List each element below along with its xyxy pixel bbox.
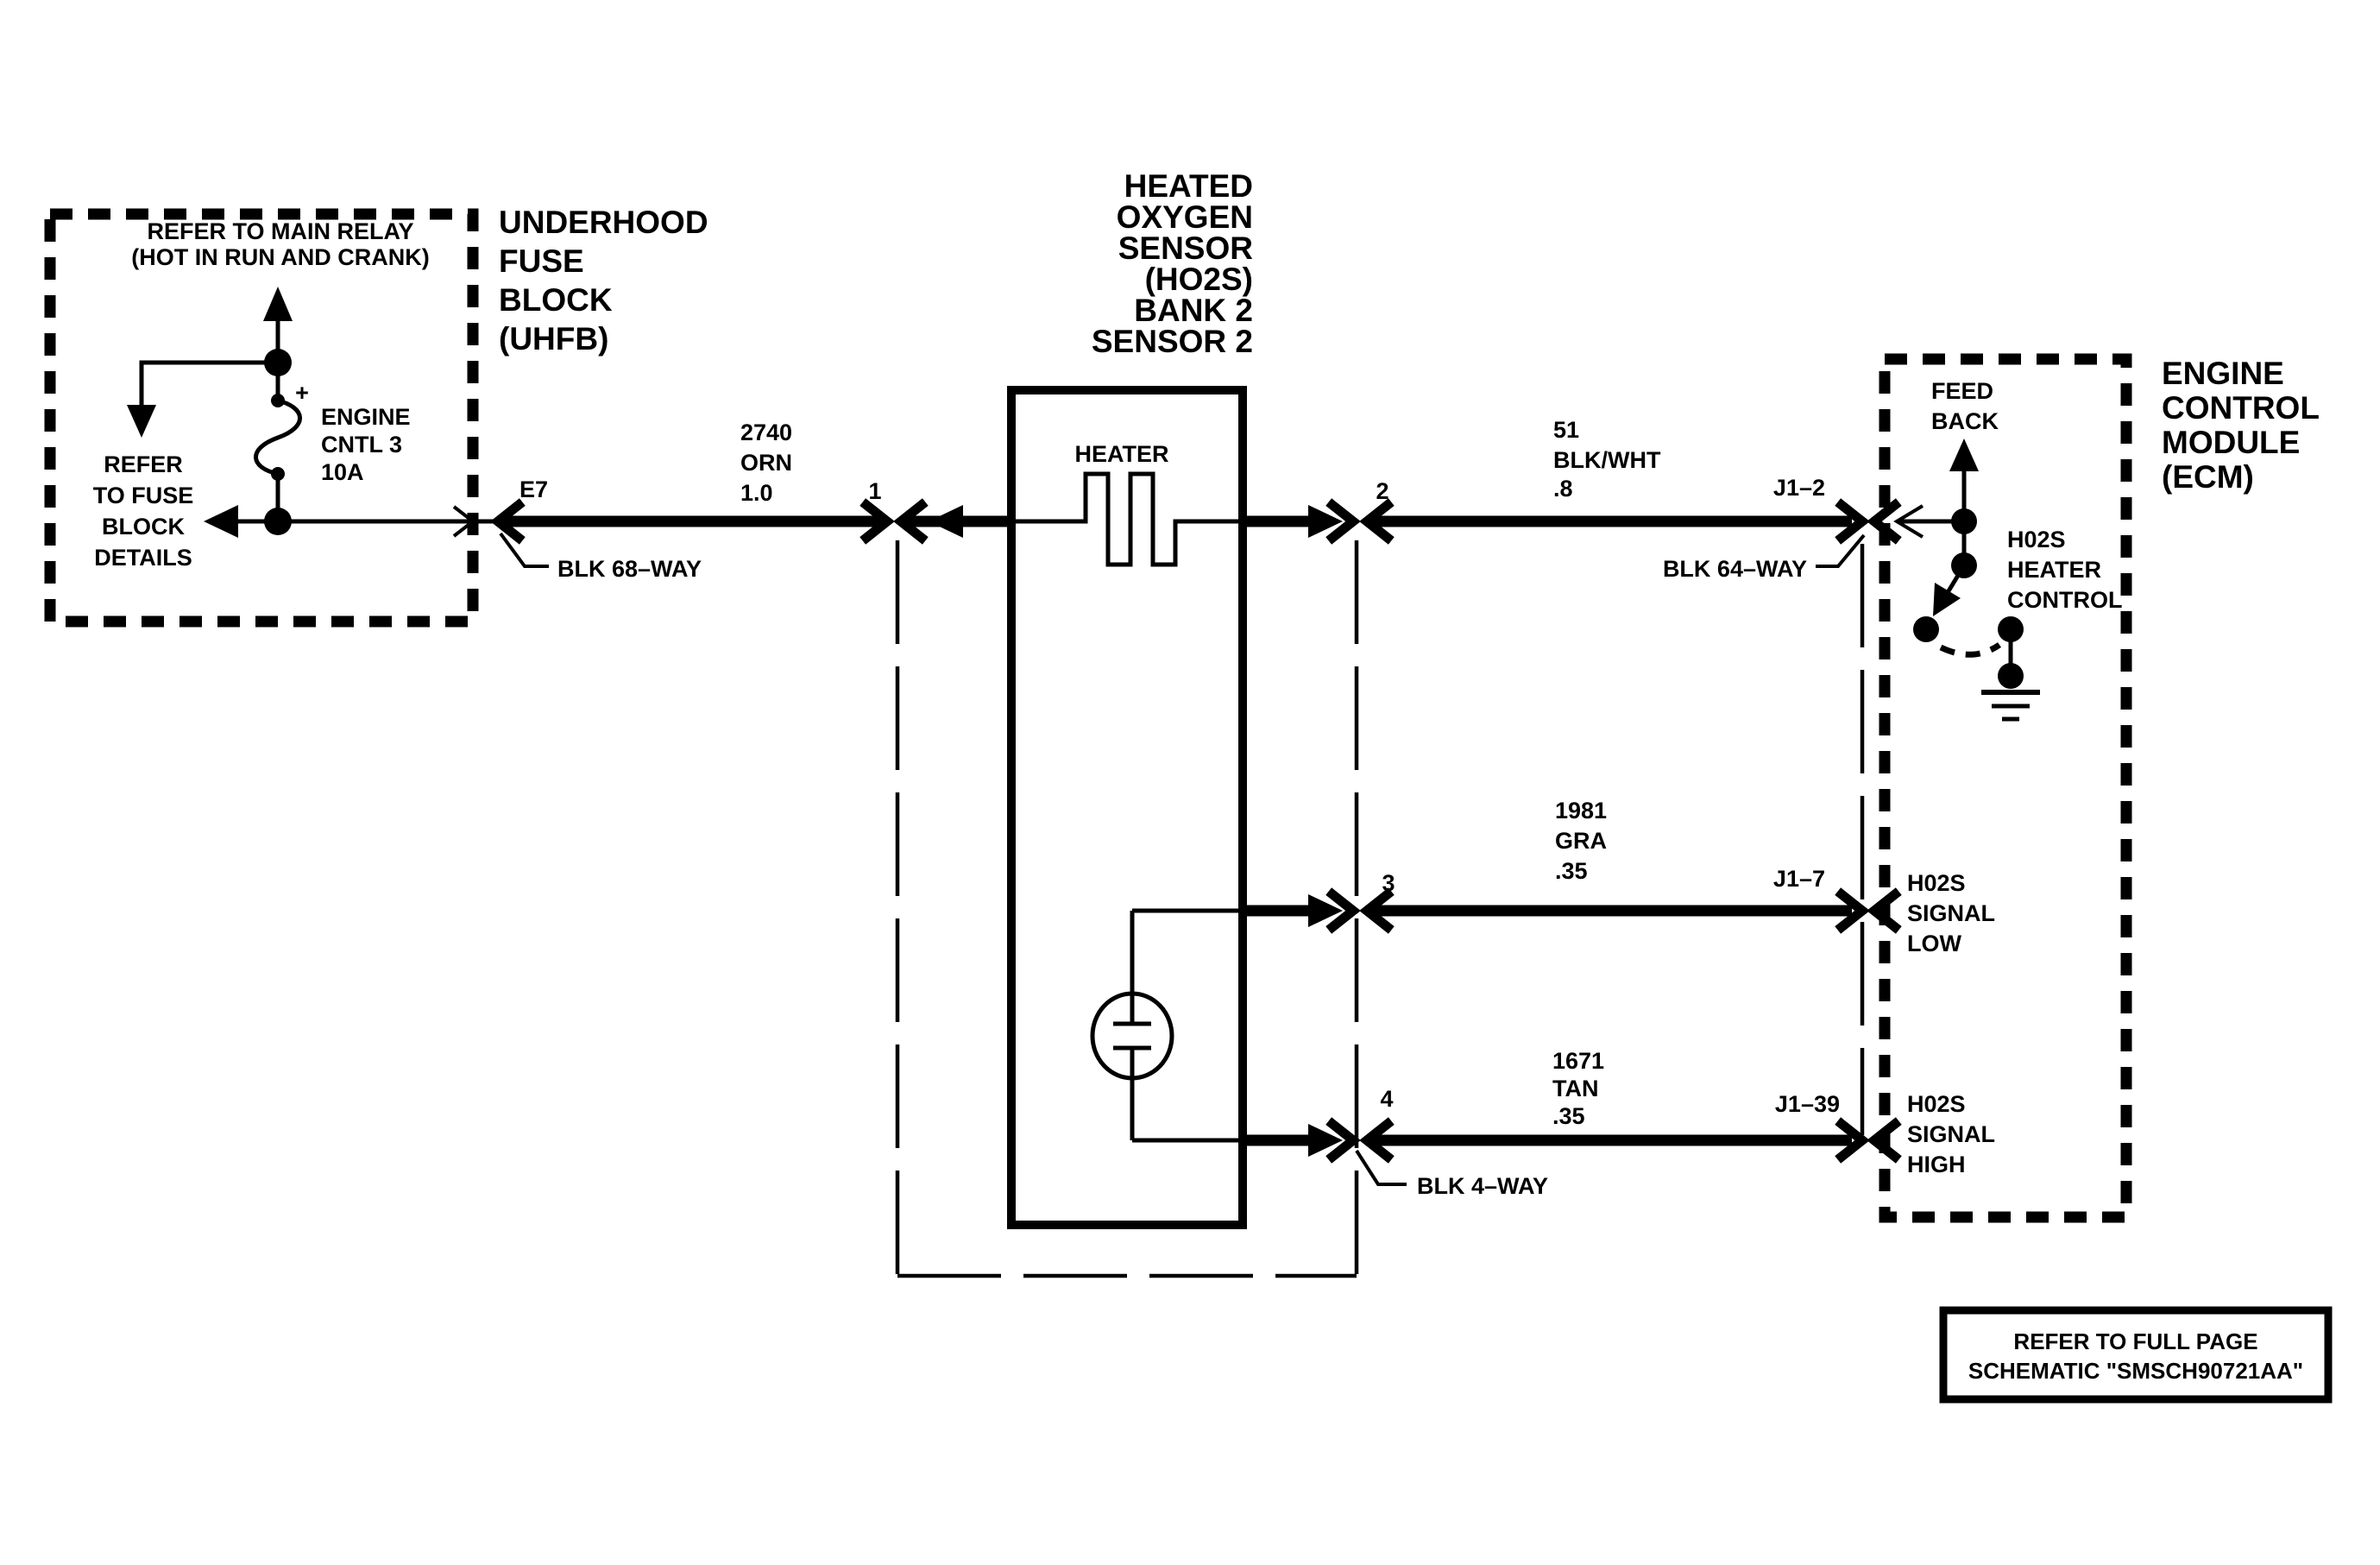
feedback-up-arrow-icon bbox=[1949, 439, 1979, 471]
wire3-color: GRA bbox=[1555, 828, 1607, 854]
wire2-gauge: .8 bbox=[1553, 476, 1573, 502]
fuse-note-line4: DETAILS bbox=[94, 545, 192, 571]
wire3-gauge: .35 bbox=[1555, 858, 1588, 884]
wire-heater-feed: E7 1 2740 ORN 1.0 BLK 68–WAY bbox=[498, 420, 1011, 582]
reference-line2: SCHEMATIC "SMSCH90721AA" bbox=[1968, 1358, 2303, 1384]
switch-travel-arc bbox=[1941, 645, 1999, 654]
down-arrow-icon bbox=[127, 405, 156, 438]
sensor-title-line1: HEATED bbox=[1124, 168, 1253, 204]
wire1-color: ORN bbox=[740, 450, 792, 476]
schematic-reference: REFER TO FULL PAGE SCHEMATIC "SMSCH90721… bbox=[1943, 1310, 2328, 1399]
pin-j1-39: J1–39 bbox=[1775, 1091, 1840, 1117]
fuse-terminal-bottom bbox=[271, 467, 285, 481]
ho2s-wiring-diagram: REFER TO MAIN RELAY (HOT IN RUN AND CRAN… bbox=[0, 0, 2380, 1565]
sensor-title-line5: BANK 2 bbox=[1134, 293, 1253, 328]
signal-low-label-line2: SIGNAL bbox=[1907, 900, 1995, 926]
ecm-title-line4: (ECM) bbox=[2162, 459, 2254, 495]
up-arrow-icon bbox=[263, 287, 293, 321]
uhfb-title-line2: FUSE bbox=[499, 243, 584, 279]
sensor-title-line4: (HO2S) bbox=[1145, 262, 1253, 297]
heater-control-label-line1: H02S bbox=[2007, 527, 2066, 552]
wire-signal-low: 3 J1–7 1981 GRA .35 bbox=[1243, 798, 1895, 927]
reference-line1: REFER TO FULL PAGE bbox=[2013, 1328, 2257, 1354]
signal-low-label-line1: H02S bbox=[1907, 870, 1966, 896]
wire-signal-high: 4 J1–39 1671 TAN .35 BLK 4–WAY bbox=[1243, 1048, 1895, 1199]
junction-dot-bottom bbox=[264, 508, 292, 535]
switch-arrow-icon bbox=[1933, 583, 1961, 616]
feedback-label-line1: FEED bbox=[1931, 378, 1993, 404]
wire4-circuit: 1671 bbox=[1552, 1048, 1604, 1074]
blk-4-way-label: BLK 4–WAY bbox=[1417, 1173, 1548, 1199]
heater-element-icon bbox=[1016, 474, 1238, 565]
wiring-diagram-page: REFER TO MAIN RELAY (HOT IN RUN AND CRAN… bbox=[0, 0, 2380, 1565]
fuse-name-line2: CNTL 3 bbox=[321, 432, 402, 458]
ecm-dashed-box bbox=[1885, 359, 2126, 1217]
ecm-title-line3: MODULE bbox=[2162, 425, 2300, 460]
main-relay-note-line1: REFER TO MAIN RELAY bbox=[147, 218, 413, 244]
switch-contact-left-dot bbox=[1913, 616, 1939, 642]
pin-j1-2: J1–2 bbox=[1773, 475, 1825, 501]
wire1-circuit: 2740 bbox=[740, 420, 792, 445]
blk-64-way-label: BLK 64–WAY bbox=[1663, 556, 1807, 582]
sensor-title-line3: SENSOR bbox=[1118, 230, 1253, 266]
ecm-title-line2: CONTROL bbox=[2162, 390, 2320, 426]
fuse-note-line3: BLOCK bbox=[102, 514, 185, 540]
sensor-title: HEATED OXYGEN SENSOR (HO2S) BANK 2 SENSO… bbox=[1092, 168, 1253, 359]
wire2-color: BLK/WHT bbox=[1553, 447, 1661, 473]
pin-j1-7: J1–7 bbox=[1773, 866, 1825, 892]
blk68-leader bbox=[501, 533, 549, 566]
signal-high-label-line2: SIGNAL bbox=[1907, 1121, 1995, 1147]
wire4-color: TAN bbox=[1552, 1076, 1599, 1101]
uhfb-title: UNDERHOOD FUSE BLOCK (UHFB) bbox=[499, 205, 708, 357]
wire4-gauge: .35 bbox=[1552, 1103, 1585, 1129]
heater-control-label-line2: HEATER bbox=[2007, 557, 2101, 583]
sensor-title-line2: OXYGEN bbox=[1117, 199, 1253, 235]
fuse-note-line2: TO FUSE bbox=[93, 483, 194, 508]
flow-arrow-left-icon bbox=[929, 505, 963, 538]
reference-box bbox=[1943, 1310, 2328, 1399]
pin-3: 3 bbox=[1382, 870, 1395, 896]
wire-heater-control: 2 J1–2 51 BLK/WHT .8 BLK 64–WAY bbox=[1243, 417, 1895, 1135]
pin-4: 4 bbox=[1380, 1086, 1393, 1112]
fuse-plus-sign: + bbox=[295, 380, 309, 406]
fuse-block-detail: REFER TO MAIN RELAY (HOT IN RUN AND CRAN… bbox=[50, 214, 499, 622]
fuse-element-icon bbox=[255, 401, 299, 474]
ecm-title-line1: ENGINE bbox=[2162, 356, 2284, 391]
pin-1: 1 bbox=[868, 478, 881, 504]
signal-high-label-line3: HIGH bbox=[1907, 1152, 1966, 1177]
signal-high-label-line1: H02S bbox=[1907, 1091, 1966, 1117]
ground-dot bbox=[1998, 663, 2024, 689]
pin-2: 2 bbox=[1376, 478, 1388, 504]
signal-low-label-line3: LOW bbox=[1907, 931, 1961, 956]
heater-label: HEATER bbox=[1074, 441, 1168, 467]
fuse-note-line1: REFER bbox=[104, 451, 183, 477]
sensor-title-line6: SENSOR 2 bbox=[1092, 324, 1253, 359]
sensor-outline-box bbox=[1011, 390, 1243, 1225]
left-arrow-icon bbox=[204, 505, 238, 538]
wire3-circuit: 1981 bbox=[1555, 798, 1607, 824]
main-relay-note-line2: (HOT IN RUN AND CRANK) bbox=[131, 244, 429, 270]
uhfb-title-line1: UNDERHOOD bbox=[499, 205, 708, 240]
wire2-circuit: 51 bbox=[1553, 417, 1579, 443]
heater-control-label-line3: CONTROL bbox=[2007, 587, 2122, 613]
blk-68-way-label: BLK 68–WAY bbox=[557, 556, 702, 582]
fuse-name-line3: 10A bbox=[321, 459, 364, 485]
pin-e7: E7 bbox=[519, 476, 548, 502]
fuse-name-line1: ENGINE bbox=[321, 404, 411, 430]
ecm: ENGINE CONTROL MODULE (ECM) FEED BACK H0… bbox=[1885, 356, 2320, 1217]
wire1-gauge: 1.0 bbox=[740, 480, 773, 506]
uhfb-title-line4: (UHFB) bbox=[499, 321, 608, 357]
feedback-label-line2: BACK bbox=[1931, 408, 1999, 434]
branch-line bbox=[142, 363, 278, 405]
uhfb-title-line3: BLOCK bbox=[499, 282, 613, 318]
